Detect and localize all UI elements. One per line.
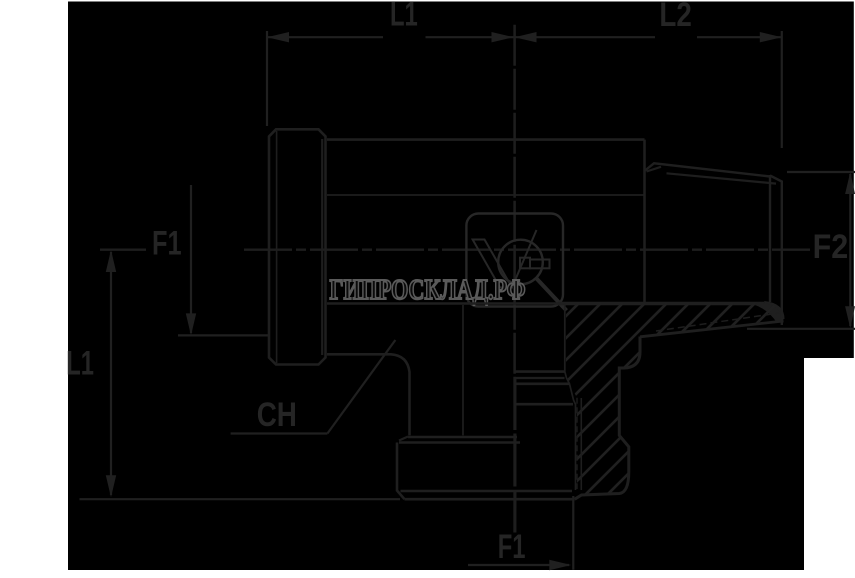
svg-text:F1: F1 [498,528,526,566]
svg-text:ГИПРОСКЛАД.РФ: ГИПРОСКЛАД.РФ [330,274,526,306]
svg-text:CH: CH [257,396,297,434]
svg-text:F2: F2 [813,228,849,266]
svg-text:F1: F1 [152,225,182,263]
svg-text:L1: L1 [66,345,94,383]
svg-text:L2: L2 [659,0,691,34]
svg-text:L1: L1 [390,0,418,34]
